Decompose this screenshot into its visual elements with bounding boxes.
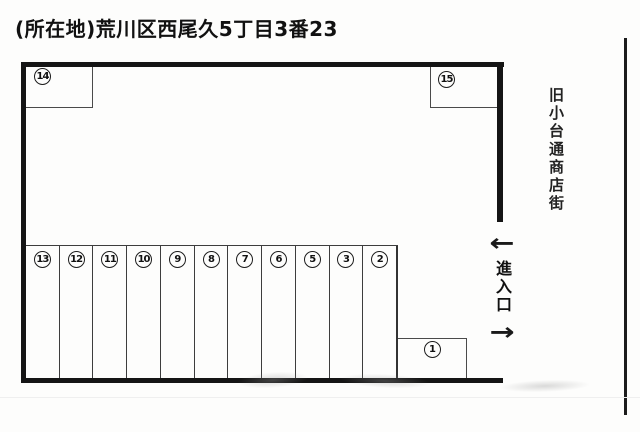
road-edge-line	[624, 38, 627, 415]
stall-number-badge: 2	[371, 251, 388, 268]
stall-number-badge: 1	[424, 341, 441, 358]
parking-stall: 9	[161, 246, 195, 378]
parking-stall: 12	[60, 246, 94, 378]
location-title: (所在地)荒川区西尾久5丁目3番23	[15, 13, 338, 42]
stall-number-badge: 5	[304, 251, 321, 268]
stall-number-badge: 14	[34, 68, 51, 85]
parking-stall: 13	[26, 246, 60, 378]
stall-number-badge: 8	[203, 251, 220, 268]
parking-stall: 6	[262, 246, 296, 378]
parking-stall-row: 13 12 11 10 9 8 7 6 5 3 2	[26, 245, 398, 378]
entrance-label-group: ← 進入口 →	[478, 231, 526, 344]
parking-stall: 7	[228, 246, 262, 378]
stall-number-badge: 7	[236, 251, 253, 268]
arrow-right-icon: →	[489, 320, 514, 344]
parking-stall: 8	[195, 246, 229, 378]
street-name-label: 旧小台通商店街	[548, 87, 563, 213]
stall-number-badge: 3	[337, 251, 354, 268]
arrow-left-icon: ←	[489, 231, 514, 255]
parking-stall-1: 1	[398, 338, 467, 378]
parking-lot-map: (所在地)荒川区西尾久5丁目3番23 14 15 1 13 12 11 10 9…	[0, 0, 640, 432]
stall-number-badge: 15	[438, 71, 455, 88]
stall-number-badge: 10	[135, 251, 152, 268]
entrance-label: 進入口	[494, 260, 510, 314]
stall-number-badge: 9	[169, 251, 186, 268]
stall-number-badge: 6	[270, 251, 287, 268]
scan-smudge	[500, 378, 590, 393]
lot-wall-right	[497, 62, 503, 222]
parking-stall: 3	[330, 246, 364, 378]
parking-stall: 10	[127, 246, 161, 378]
scan-streak	[0, 397, 640, 398]
stall-number-badge: 12	[68, 251, 85, 268]
parking-stall-14: 14	[26, 67, 93, 108]
parking-stall: 2	[363, 246, 398, 378]
parking-stall-15: 15	[430, 67, 497, 108]
stall-number-badge: 13	[34, 251, 51, 268]
parking-stall: 11	[93, 246, 127, 378]
parking-stall: 5	[296, 246, 330, 378]
stall-number-badge: 11	[101, 251, 118, 268]
